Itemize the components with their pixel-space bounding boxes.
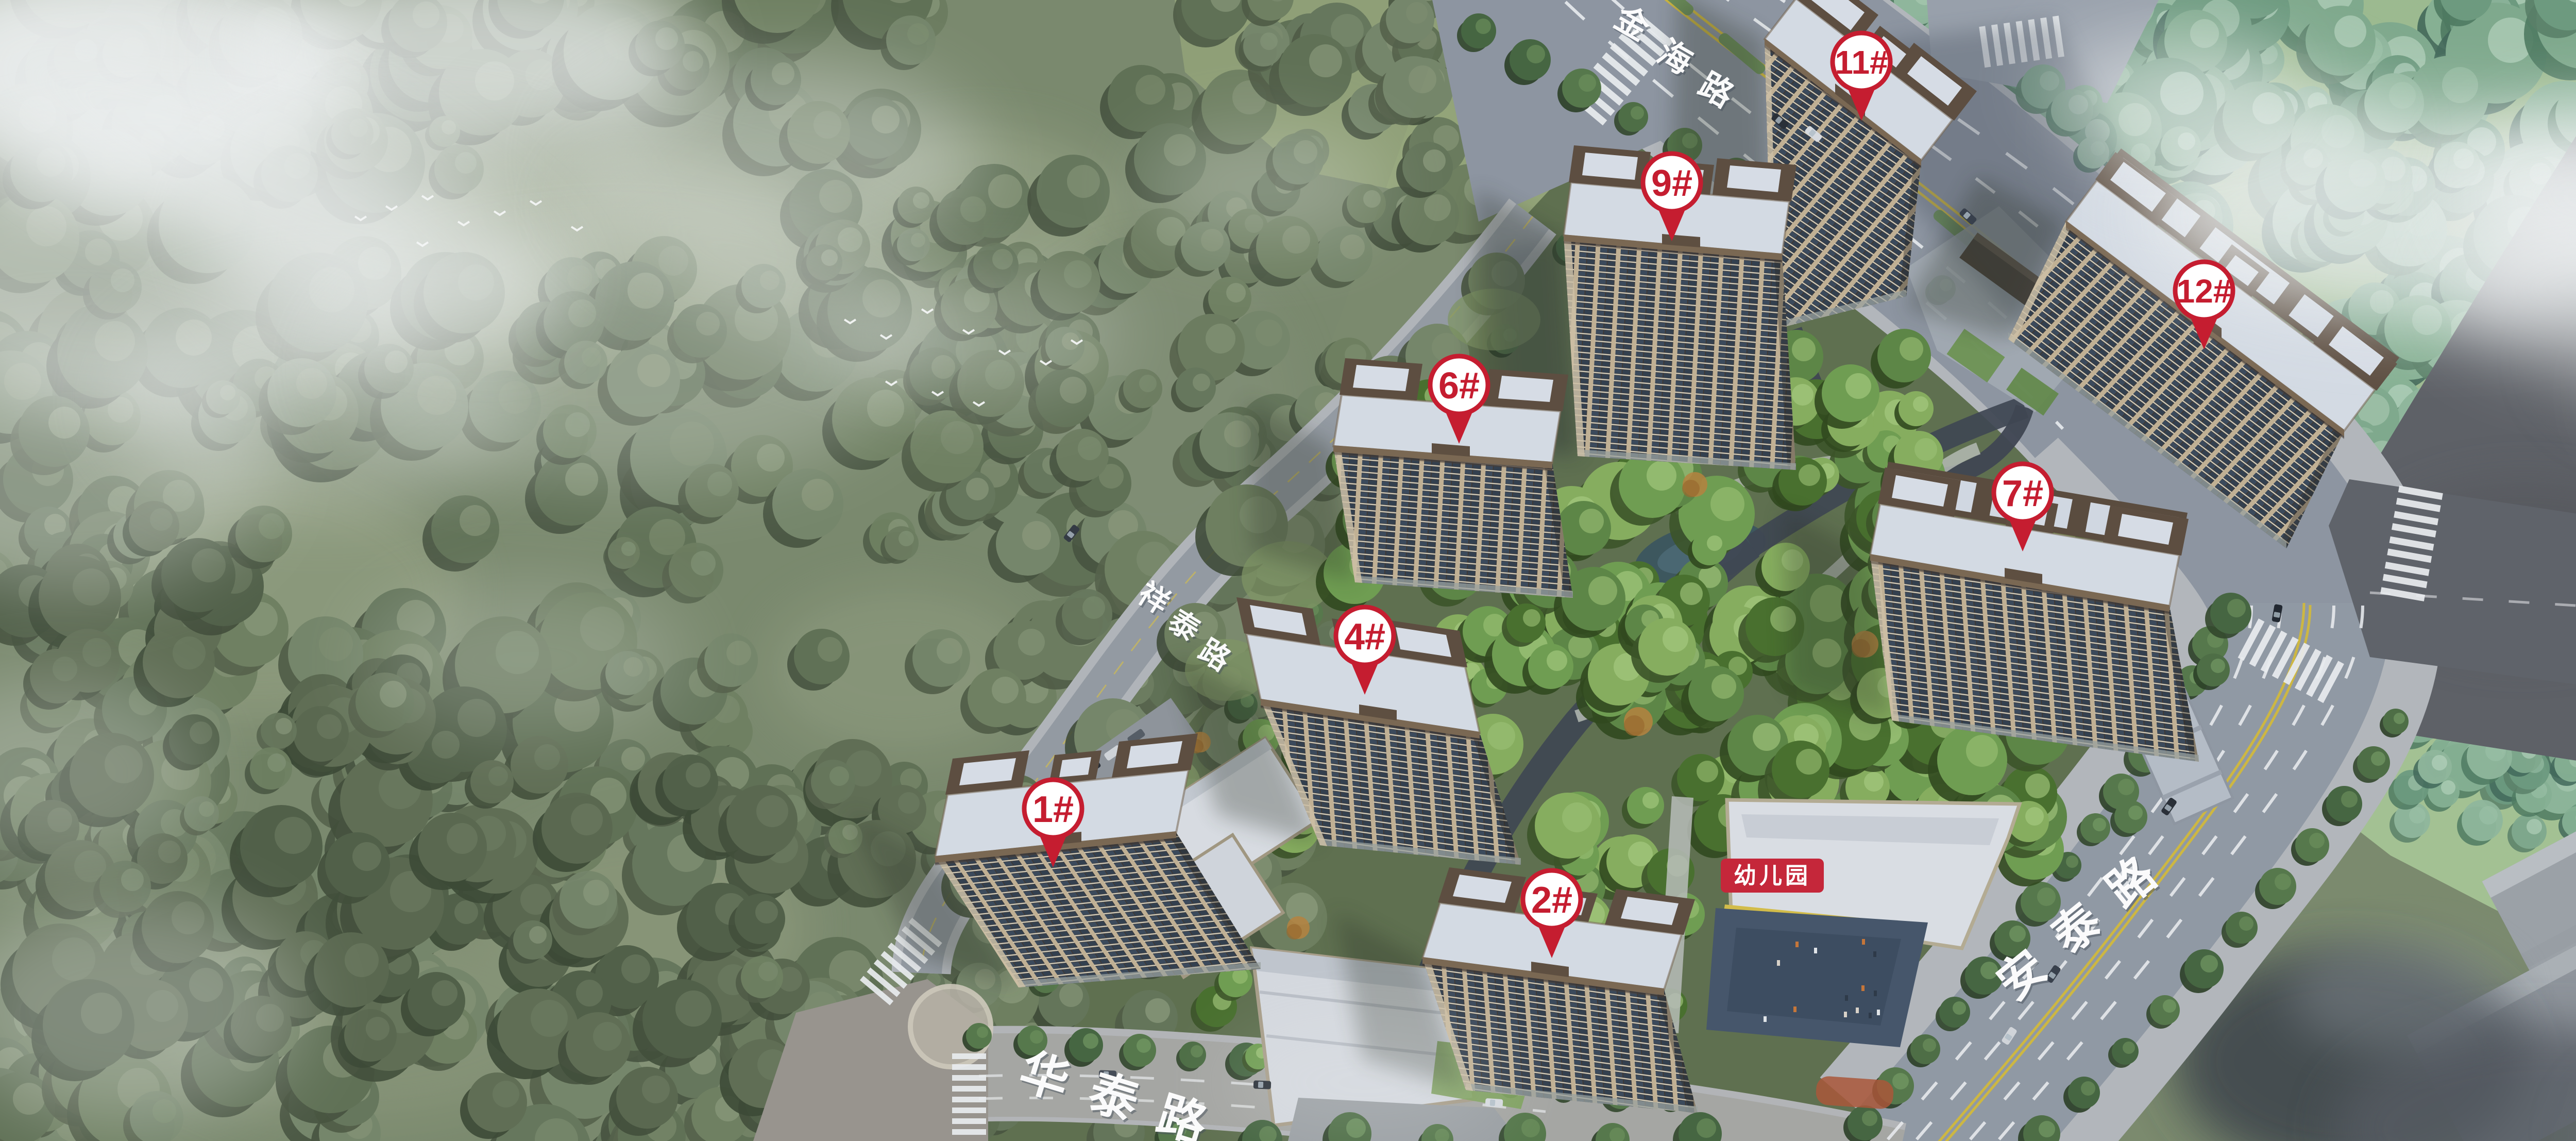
svg-text:12#: 12# [2177, 273, 2232, 310]
svg-text:11#: 11# [1835, 44, 1888, 81]
svg-text:幼儿园: 幼儿园 [1734, 863, 1811, 888]
svg-text:1#: 1# [1032, 789, 1074, 830]
svg-text:7#: 7# [2002, 473, 2043, 514]
svg-text:2#: 2# [1531, 880, 1572, 921]
svg-text:6#: 6# [1438, 365, 1480, 407]
svg-text:4#: 4# [1344, 616, 1385, 658]
svg-text:9#: 9# [1651, 163, 1692, 204]
